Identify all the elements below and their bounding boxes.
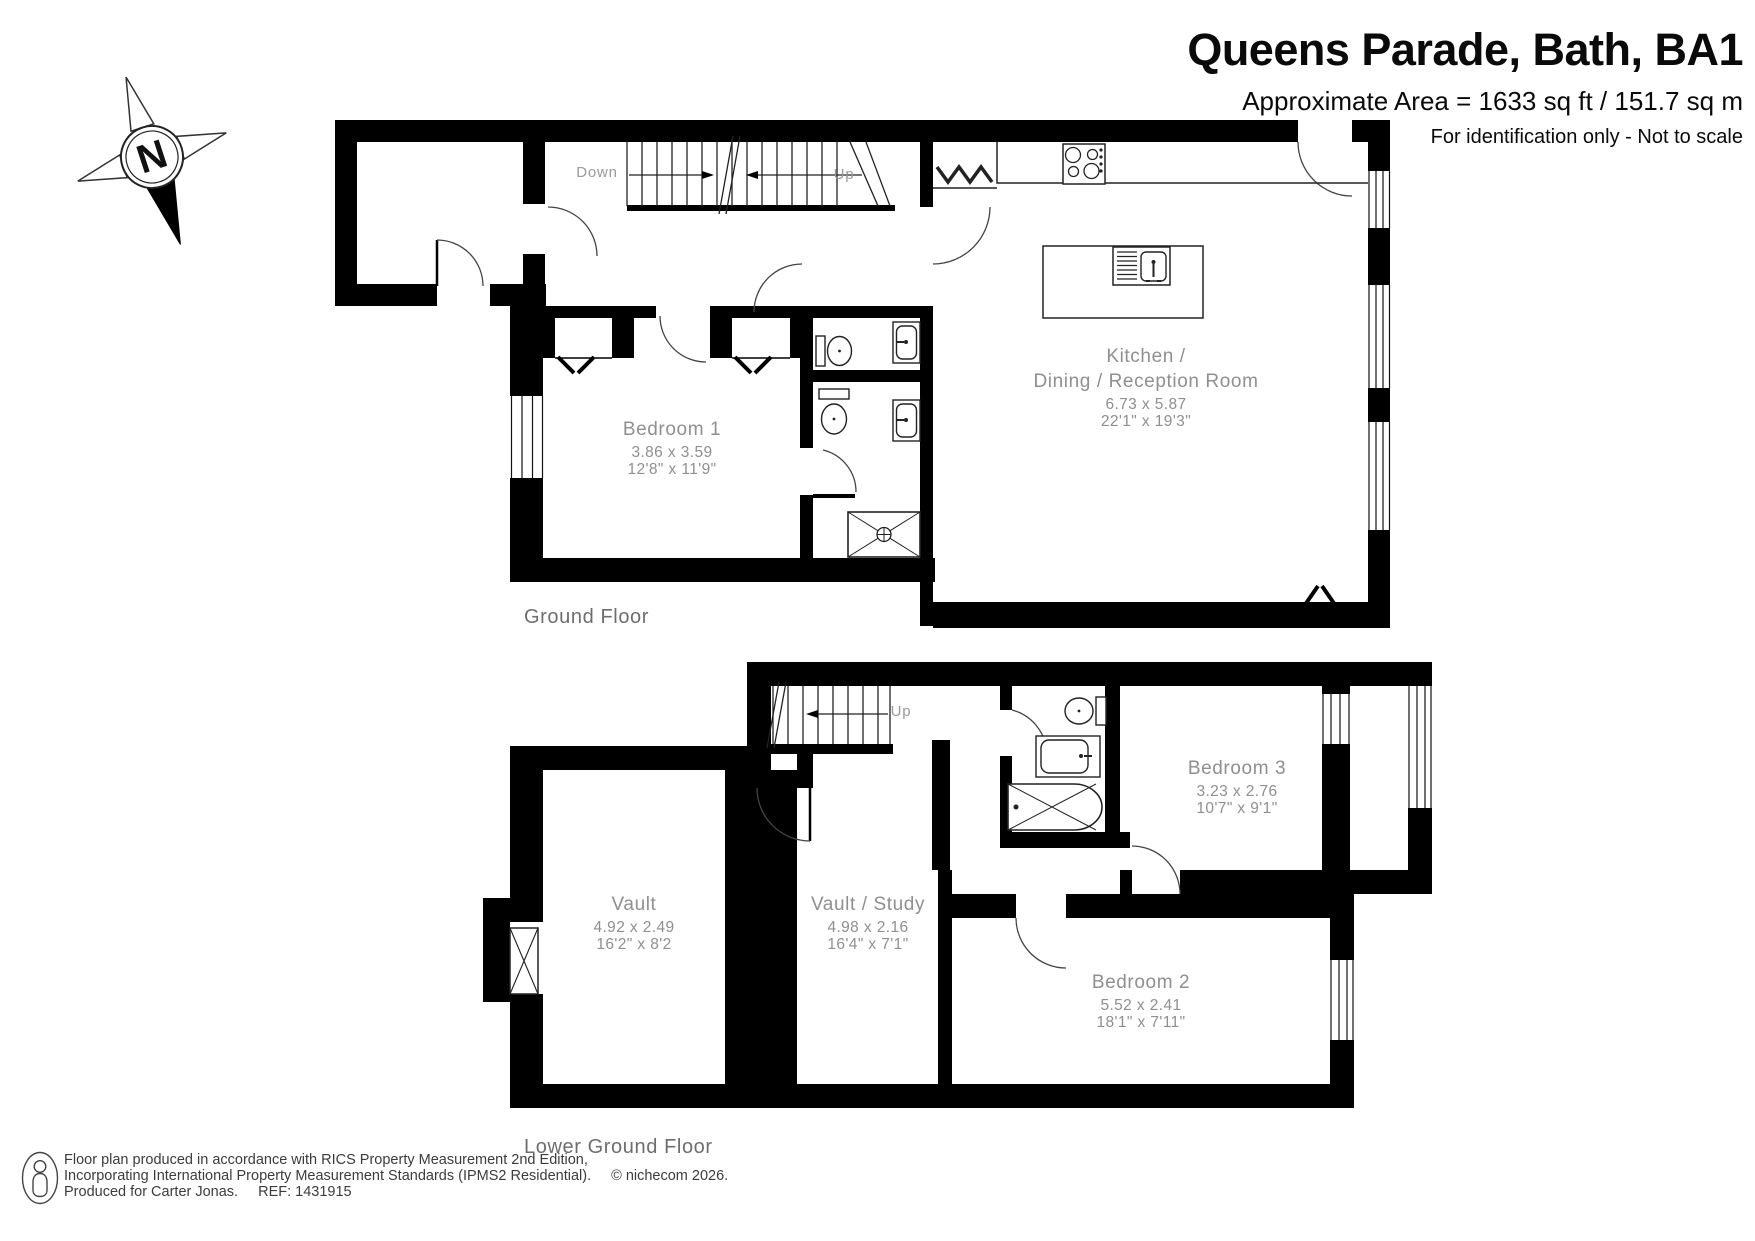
room-name: Vault bbox=[593, 894, 674, 916]
footer-line3: Produced for Carter Jonas.REF: 1431915 bbox=[64, 1184, 728, 1200]
gf-shower-icon bbox=[848, 512, 920, 557]
room-dims-metric: 4.92 x 2.49 bbox=[593, 919, 674, 936]
room-name: Dining / Reception Room bbox=[1033, 371, 1258, 393]
footer-disclaimer: Floor plan produced in accordance with R… bbox=[64, 1152, 728, 1200]
footer-produced-for: Produced for Carter Jonas. bbox=[64, 1184, 238, 1200]
lgf-stairs-up-label: Up bbox=[891, 703, 912, 720]
footer-standards-text: Incorporating International Property Mea… bbox=[64, 1168, 591, 1184]
gf-door-arcs bbox=[437, 142, 1352, 496]
person-icon bbox=[23, 1153, 58, 1204]
gf-staircase-icon bbox=[627, 136, 895, 214]
lgf-vault-vent-icon bbox=[510, 928, 538, 994]
gf-closet-hanging-icon bbox=[937, 167, 992, 182]
approximate-area-text: Approximate Area = 1633 sq ft / 151.7 sq… bbox=[1187, 86, 1743, 117]
floorplan-page: N bbox=[0, 0, 1755, 1241]
room-dims-imperial: 22'1" x 19'3" bbox=[1033, 413, 1258, 430]
page-title: Queens Parade, Bath, BA1 bbox=[1187, 24, 1743, 76]
room-label-vault: Vault 4.92 x 2.49 16'2" x 8'2 bbox=[593, 894, 674, 953]
room-name: Kitchen / bbox=[1033, 346, 1258, 368]
title-block: Queens Parade, Bath, BA1 Approximate Are… bbox=[1187, 24, 1743, 149]
room-name: Vault / Study bbox=[811, 894, 925, 916]
room-dims-metric: 4.98 x 2.16 bbox=[811, 919, 925, 936]
floorplan-canvas: N bbox=[0, 0, 1755, 1241]
lower-ground-floor-plan bbox=[483, 662, 1432, 1108]
footer-copyright: © nichecom 2026. bbox=[611, 1168, 728, 1184]
lgf-walls bbox=[483, 662, 1432, 1108]
gf-island-sink-icon bbox=[1043, 246, 1203, 318]
room-dims-metric: 5.52 x 2.41 bbox=[1092, 997, 1190, 1014]
room-dims-imperial: 18'1" x 7'11" bbox=[1092, 1014, 1190, 1031]
footer-line2: Incorporating International Property Mea… bbox=[64, 1168, 728, 1184]
room-label-kitchen: Kitchen / Dining / Reception Room 6.73 x… bbox=[1033, 346, 1258, 430]
room-dims-imperial: 16'4" x 7'1" bbox=[811, 936, 925, 953]
room-label-bedroom2: Bedroom 2 5.52 x 2.41 18'1" x 7'11" bbox=[1092, 972, 1190, 1031]
footer-ref: REF: 1431915 bbox=[258, 1184, 352, 1200]
gf-wc1-basin-icon bbox=[893, 322, 920, 363]
lgf-staircase-icon bbox=[767, 682, 890, 748]
gf-stairs-down-label: Down bbox=[576, 164, 618, 181]
room-dims-metric: 3.86 x 3.59 bbox=[623, 444, 721, 461]
gf-wardrobe-icons bbox=[555, 357, 790, 373]
scale-disclaimer-text: For identification only - Not to scale bbox=[1187, 126, 1743, 149]
room-name: Bedroom 1 bbox=[623, 419, 721, 441]
gf-stairs-up-label: Up bbox=[834, 166, 855, 183]
ground-floor-title: Ground Floor bbox=[524, 606, 649, 629]
room-label-bedroom3: Bedroom 3 3.23 x 2.76 10'7" x 9'1" bbox=[1188, 758, 1286, 817]
footer-line1: Floor plan produced in accordance with R… bbox=[64, 1152, 728, 1168]
room-name: Bedroom 2 bbox=[1092, 972, 1190, 994]
room-dims-metric: 6.73 x 5.87 bbox=[1033, 396, 1258, 413]
room-label-bedroom1: Bedroom 1 3.86 x 3.59 12'8" x 11'9" bbox=[623, 419, 721, 478]
room-dims-imperial: 10'7" x 9'1" bbox=[1188, 800, 1286, 817]
gf-wc2-toilet-icon bbox=[819, 389, 849, 434]
lgf-bath-icon bbox=[1008, 784, 1102, 830]
lgf-toilet-icon bbox=[1065, 697, 1106, 725]
room-dims-imperial: 16'2" x 8'2 bbox=[593, 936, 674, 953]
room-dims-metric: 3.23 x 2.76 bbox=[1188, 783, 1286, 800]
compass-icon: N bbox=[52, 53, 255, 269]
room-dims-imperial: 12'8" x 11'9" bbox=[623, 461, 721, 478]
gf-hob-icon bbox=[1063, 144, 1105, 184]
gf-wc1-toilet-icon bbox=[816, 336, 852, 366]
room-name: Bedroom 3 bbox=[1188, 758, 1286, 780]
lgf-basin-icon bbox=[1036, 736, 1100, 777]
gf-wc2-basin-icon bbox=[893, 400, 920, 441]
room-label-vault-study: Vault / Study 4.98 x 2.16 16'4" x 7'1" bbox=[811, 894, 925, 953]
